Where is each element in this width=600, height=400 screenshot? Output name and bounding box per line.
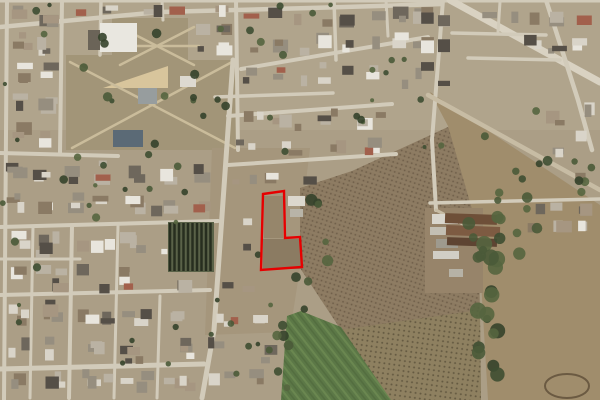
satellite-map-svg bbox=[0, 0, 600, 400]
satellite-map-image bbox=[0, 0, 600, 400]
